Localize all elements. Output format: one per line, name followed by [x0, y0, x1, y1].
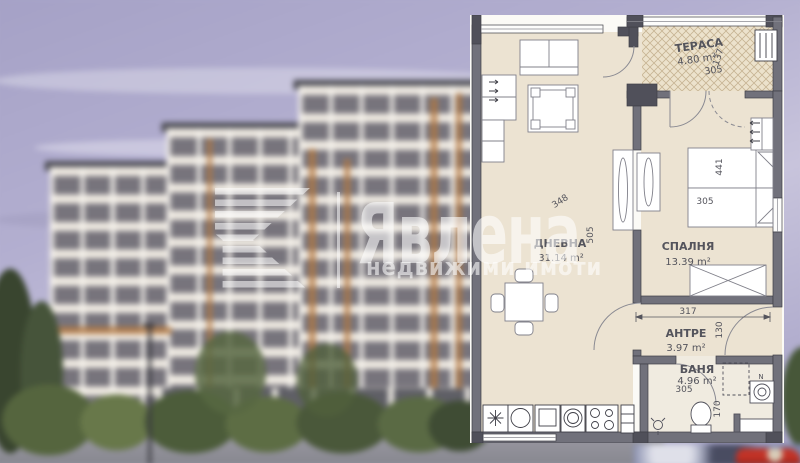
room-area-hall: 3.97 m² [666, 343, 705, 354]
dim-hall-depth: 130 [715, 321, 725, 338]
watermark-divider [337, 192, 340, 288]
facade-accent [50, 326, 172, 334]
ac-unit [755, 30, 777, 61]
tree [195, 331, 266, 414]
dining-table [505, 283, 543, 321]
room-area-bedroom: 13.39 m² [665, 257, 711, 268]
lamppost [148, 327, 151, 463]
room-label-bedroom: СПАЛНЯ [662, 240, 715, 253]
dim-hall-width: 317 [679, 307, 696, 317]
watermark-tagline: недвижими имоти [366, 254, 602, 280]
listing-image: ТЕРАСА 4.80 m² 305 ДНЕВНА 31.14 m² СПАЛН… [0, 0, 800, 463]
lamppost-head [143, 323, 154, 327]
chair [515, 322, 533, 335]
shower-tray [737, 419, 773, 432]
toilet [691, 402, 711, 426]
niche-mark: N [758, 373, 763, 381]
dim-living-depth: 505 [586, 226, 596, 243]
corner-sofa [482, 75, 516, 120]
dim-bath-width: 305 [675, 385, 692, 395]
dim-bed-length: 441 [715, 158, 725, 175]
cabinet [621, 405, 634, 433]
red-car [736, 448, 800, 463]
chair [491, 294, 504, 312]
sink [511, 409, 530, 428]
chair [545, 294, 558, 312]
wall-stub [734, 414, 740, 432]
bush [80, 394, 153, 450]
room-label-bath: БАНЯ [680, 363, 715, 376]
sink-round [564, 409, 582, 427]
wardrobe-living [613, 150, 633, 230]
cooktop [586, 405, 618, 432]
tree [296, 344, 357, 417]
kitchen-counter [483, 405, 634, 433]
dim-bath-depth: 170 [713, 400, 723, 417]
toilet-tank [691, 425, 711, 433]
wardrobe-bedroom [637, 153, 660, 211]
room-label-hall: АНТРЕ [666, 327, 707, 340]
dim-bed-width: 305 [696, 197, 713, 207]
